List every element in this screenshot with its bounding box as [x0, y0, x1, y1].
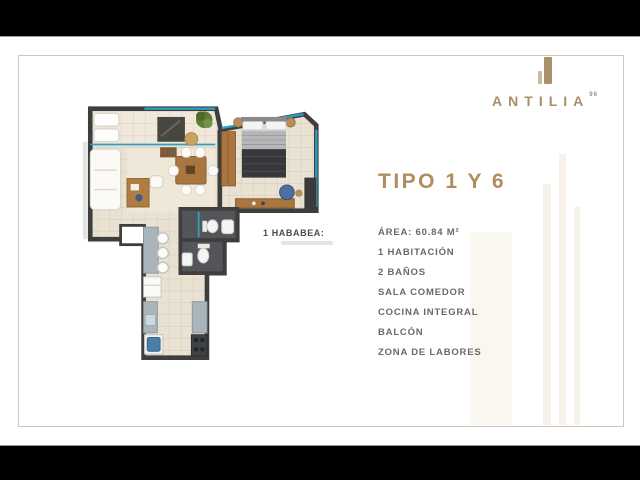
kitchen-sink: [145, 315, 155, 326]
dining-chair: [195, 185, 205, 195]
plant: [196, 111, 213, 128]
low-table: [157, 117, 185, 142]
dining-chair: [208, 166, 218, 176]
side-basket: [295, 190, 302, 197]
stool: [157, 233, 168, 244]
bathroom-1: [180, 209, 237, 240]
brochure-page: { "brand": { "name": "ANTILIA", "supersc…: [0, 0, 640, 480]
dining-chair: [181, 185, 191, 195]
desk-chair-blue: [280, 185, 295, 200]
tall-cabinet: [304, 178, 316, 210]
slide-canvas: ANTILIA96 TIPO 1 Y 6 ÁREA: 60.84 M² 1 HA…: [0, 36, 640, 446]
stove: [191, 335, 207, 356]
lounger: [94, 113, 119, 126]
sofa: [90, 149, 120, 210]
desk-chair: [150, 176, 163, 188]
wall-shadow: [83, 142, 88, 239]
sink: [182, 253, 192, 266]
pouf: [185, 133, 198, 146]
lounger: [94, 129, 119, 142]
kitchen-counter: [144, 227, 159, 273]
dining-chair: [168, 166, 178, 176]
nightstand: [286, 118, 295, 127]
dining-chair: [181, 147, 191, 157]
entry-door-nook: [121, 225, 145, 244]
work-desk: [127, 179, 149, 207]
kitchen-counter: [192, 302, 207, 333]
bathroom-2: [180, 240, 224, 273]
dining-chair: [195, 147, 205, 157]
floorplan-drawing: [0, 37, 640, 445]
toilet: [207, 220, 218, 233]
stool: [157, 262, 168, 273]
sink: [222, 220, 234, 234]
desk-cushion: [135, 194, 142, 201]
stool: [157, 247, 168, 258]
living-dining-zone: [90, 147, 218, 212]
toilet: [198, 248, 209, 263]
toilet-tank: [198, 244, 210, 249]
fridge: [144, 277, 161, 297]
toilet-tank: [202, 221, 207, 232]
console-table: [160, 147, 177, 157]
